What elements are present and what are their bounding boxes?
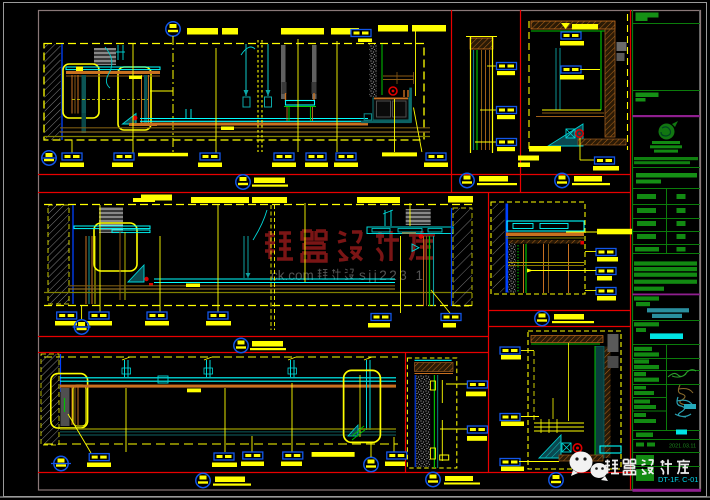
svg-text:ck.com: ck.com bbox=[271, 268, 314, 283]
svg-text:sjj223 1: sjj223 1 bbox=[359, 268, 426, 283]
svg-text:2021.03.11: 2021.03.11 bbox=[669, 444, 696, 450]
svg-text:DT-1F. C-01: DT-1F. C-01 bbox=[658, 475, 698, 484]
